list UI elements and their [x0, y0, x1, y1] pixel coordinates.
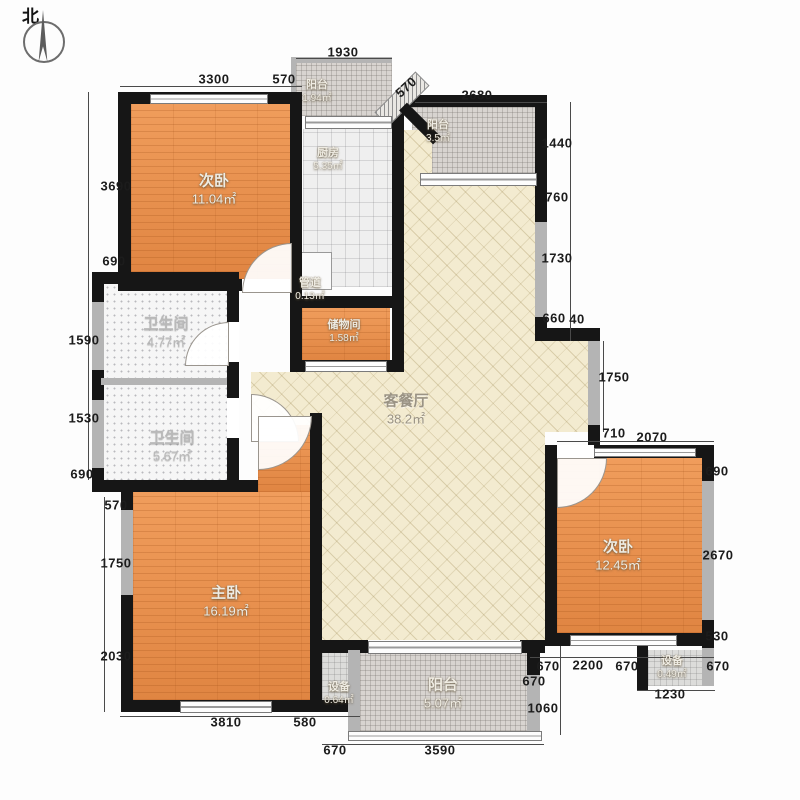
room-label-bathroom-lower: 卫生间 5.67㎡	[149, 430, 194, 465]
room-name: 厨房	[313, 147, 342, 161]
dim-label: 2200	[573, 658, 604, 673]
room-label-balcony-top: 阳台 1.94㎡	[302, 79, 331, 105]
room-name: 主卧	[203, 585, 249, 604]
room-area: 1.94㎡	[302, 93, 331, 106]
wall	[637, 646, 648, 690]
room-name: 次卧	[192, 173, 237, 192]
dim-label: 670	[536, 659, 559, 674]
compass: 北	[10, 2, 70, 82]
wall	[545, 445, 557, 646]
room-label-bathroom-upper: 卫生间 4.77㎡	[143, 316, 188, 351]
room-label-equipment-right: 设备 0.49㎡	[657, 655, 686, 681]
dim-label: 1930	[328, 45, 359, 60]
room-label-bedroom-top-left: 次卧 11.04㎡	[192, 173, 237, 208]
room-area: 16.19㎡	[203, 603, 249, 619]
room-name: 储物间	[328, 319, 361, 333]
wall	[92, 272, 238, 284]
dim-label: 690	[102, 254, 125, 269]
dim-label: 660	[542, 311, 565, 326]
room-area: 3.5㎡	[426, 133, 450, 146]
room-area: 5.35㎡	[313, 161, 342, 174]
room-name: 设备	[657, 655, 686, 669]
dim-label: 1750	[599, 370, 630, 385]
dimension-line	[603, 341, 604, 432]
wall	[588, 425, 600, 445]
dim-label: 2680	[462, 88, 493, 103]
window	[570, 635, 677, 646]
window	[150, 94, 268, 104]
dim-label: 3810	[211, 715, 242, 730]
wall	[310, 413, 322, 712]
dim-label: 2030	[101, 649, 132, 664]
room-area: 5.67㎡	[149, 448, 194, 464]
dim-label: 690	[705, 464, 728, 479]
dim-label: 670	[522, 674, 545, 689]
dim-label: 760	[545, 190, 568, 205]
room-name: 设备	[324, 681, 353, 695]
dim-label: 580	[293, 715, 316, 730]
room-label-balcony-bottom: 阳台 5.07㎡	[424, 677, 462, 712]
dim-label: 1730	[542, 251, 573, 266]
wall	[392, 100, 404, 372]
room-label-pipe-duct: 管道 0.13㎡	[295, 277, 324, 303]
room-label-master-bedroom: 主卧 16.19㎡	[203, 585, 249, 620]
dim-label: 670	[706, 659, 729, 674]
wall	[535, 328, 600, 341]
bath-divider	[101, 378, 227, 385]
dimension-line	[104, 497, 105, 712]
dim-label: 2670	[703, 548, 734, 563]
window	[594, 448, 696, 457]
window	[305, 116, 392, 129]
dim-label: 1440	[542, 136, 573, 151]
room-name: 管道	[295, 277, 324, 291]
room-label-balcony-top-right: 阳台 3.5㎡	[426, 119, 450, 145]
room-name: 卫生间	[143, 316, 188, 335]
door-gap	[227, 398, 239, 438]
room-name: 卫生间	[149, 430, 194, 449]
dim-label: 1750	[101, 556, 132, 571]
dim-label: 2070	[637, 430, 668, 445]
window	[368, 641, 522, 654]
balcony-rail	[348, 731, 542, 741]
dim-label: 1530	[69, 411, 100, 426]
room-area: 12.45㎡	[595, 557, 641, 573]
room-label-living-dining: 客餐厅 38.2㎡	[383, 393, 428, 428]
room-area: 38.2㎡	[383, 411, 428, 427]
room-area: 4.77㎡	[143, 334, 188, 350]
dim-label: 710	[602, 426, 625, 441]
window	[420, 173, 537, 186]
dimension-line	[557, 441, 714, 442]
dim-label: 3300	[199, 72, 230, 87]
room-name: 次卧	[595, 539, 641, 558]
dim-label: 570	[104, 498, 127, 513]
room-area: 0.13㎡	[295, 291, 324, 304]
dim-label: 1230	[655, 687, 686, 702]
floor-plan: 1930 3300 570 570 2680 1440 760 1730 660…	[0, 0, 800, 800]
room-label-kitchen: 厨房 5.35㎡	[313, 147, 342, 173]
dim-label: 40	[569, 312, 584, 327]
window-strip	[121, 510, 133, 595]
room-name: 客餐厅	[383, 393, 428, 412]
dim-label: 670	[323, 743, 346, 758]
window	[305, 361, 387, 372]
dim-label: 570	[272, 72, 295, 87]
room-area: 0.49㎡	[657, 669, 686, 682]
dimension-line	[560, 646, 561, 735]
dim-label: 670	[615, 659, 638, 674]
window	[180, 701, 272, 713]
dim-label: 1060	[528, 701, 559, 716]
dim-label: 3590	[425, 743, 456, 758]
room-area: 0.64㎡	[324, 695, 353, 708]
door-gap	[557, 445, 594, 458]
dim-label: 1590	[69, 333, 100, 348]
room-label-equipment-left: 设备 0.64㎡	[324, 681, 353, 707]
room-name: 阳台	[424, 677, 462, 696]
room-area: 5.07㎡	[424, 695, 462, 711]
room-label-storage: 储物间 1.58㎡	[328, 319, 361, 345]
dim-label: 530	[705, 629, 728, 644]
room-name: 阳台	[426, 119, 450, 133]
room-name: 阳台	[302, 79, 331, 93]
wall	[227, 272, 239, 492]
room-area: 11.04㎡	[192, 191, 237, 207]
wall	[322, 640, 368, 653]
room-area: 1.58㎡	[328, 333, 361, 346]
dim-label: 690	[70, 467, 93, 482]
wall	[92, 480, 258, 492]
dim-label: 3690	[101, 179, 132, 194]
room-label-bedroom-right: 次卧 12.45㎡	[595, 539, 641, 574]
window-strip	[535, 222, 547, 317]
